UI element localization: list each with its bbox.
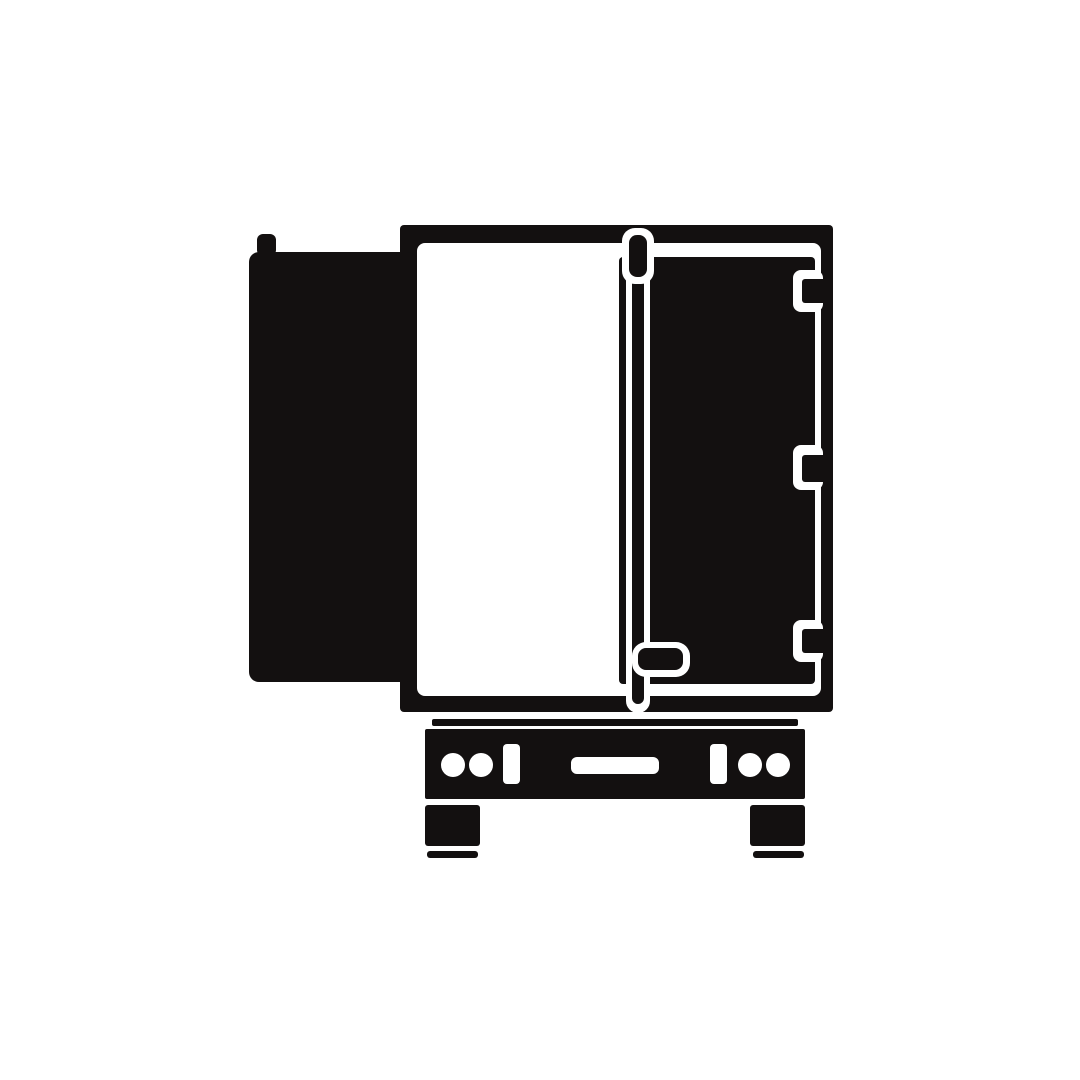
hinge-tab-middle [802,455,833,482]
taillight-right-inner [738,753,762,777]
left-door-open [249,252,417,682]
taillight-left-inner [469,753,493,777]
icon-canvas [0,0,1080,1080]
license-plate [571,757,659,774]
semi-trailer-rear-open-door-icon [0,0,1080,1080]
hinge-tab-top [802,279,833,303]
taillight-left-outer [441,753,465,777]
reflector-left [503,744,520,784]
wheel-left-ground [427,851,478,858]
door-handle [638,648,683,670]
lock-rod [632,246,644,704]
wheel-left [425,805,480,846]
reflector-right [710,744,727,784]
taillight-right-outer [766,753,790,777]
hinge-tab-bottom [802,629,833,653]
wheel-right [750,805,805,846]
rod-knob [629,235,647,277]
chassis-bar [432,719,798,726]
wheel-right-ground [753,851,804,858]
